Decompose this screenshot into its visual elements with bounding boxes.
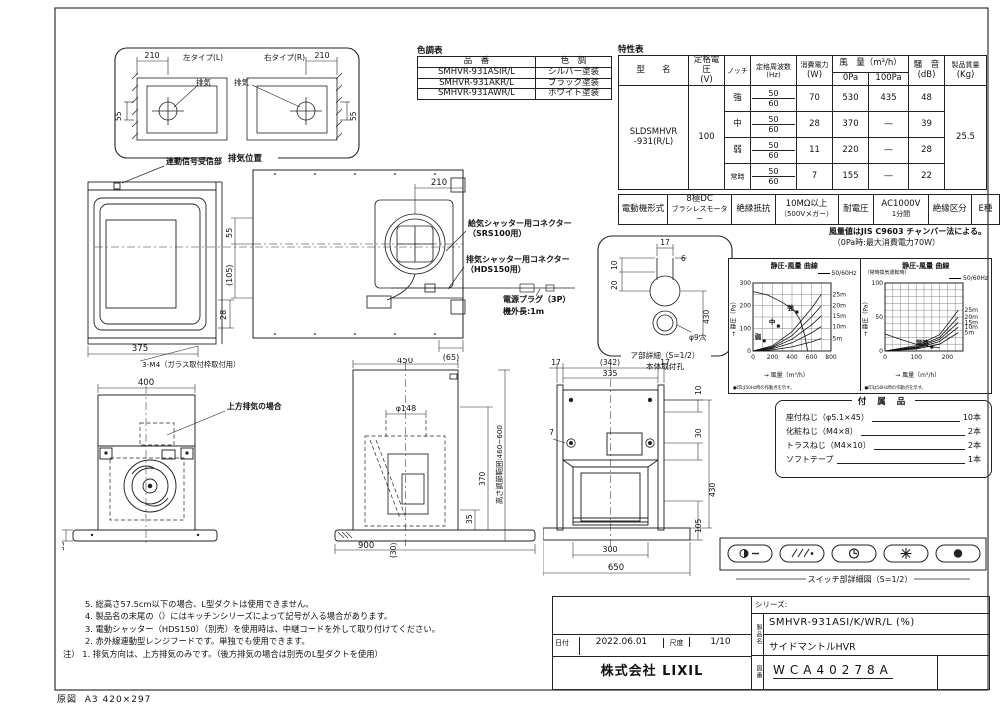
svg-text:0: 0 <box>883 354 887 361</box>
power: 28 <box>797 112 833 138</box>
mass-value: 25.5 <box>945 86 987 190</box>
withstand-v-label: 耐電圧 <box>838 195 874 225</box>
dim-650: 650 <box>608 563 624 573</box>
svg-text:200: 200 <box>767 354 779 361</box>
svg-text:10m: 10m <box>833 324 847 331</box>
svg-text:800: 800 <box>825 354 837 361</box>
chart-xlabel: → 風量（m³/h） <box>861 370 976 379</box>
note-line: 4. 製品名の末尾の（）にはキッチンシリーズによって記号が入る場合があります。 <box>63 610 513 622</box>
model-name: SLDSMHVR-931(R/L) <box>619 86 689 190</box>
color-col-color: 色 調 <box>536 57 612 68</box>
svg-text:400: 400 <box>786 354 798 361</box>
dim-6: 6 <box>681 254 686 263</box>
notch: 強 <box>725 86 751 112</box>
hole-label: φ9穴 <box>689 332 707 342</box>
svg-text:5m: 5m <box>833 336 843 343</box>
svg-text:50: 50 <box>875 314 883 321</box>
company-name: 株式会社 LIXIL <box>553 660 751 679</box>
airflow-0pa: 220 <box>833 138 869 164</box>
dim-17-right: 17 <box>660 358 670 367</box>
noise: 22 <box>909 164 945 190</box>
dim-10: 10 <box>610 260 619 270</box>
svg-text:200: 200 <box>740 303 752 310</box>
svg-text:中: 中 <box>769 317 776 326</box>
exhaust-label-left: 排気 <box>196 77 211 87</box>
svg-text:強: 強 <box>787 303 794 312</box>
noise: 48 <box>909 86 945 112</box>
dim-375: 375 <box>132 344 148 354</box>
dim-17-left: 17 <box>551 358 561 367</box>
airflow-0pa: 370 <box>833 112 869 138</box>
h-airflow-100pa: 100Pa <box>869 73 909 86</box>
freq: 5060 <box>751 164 797 190</box>
color-col-part: 品 番 <box>418 57 536 68</box>
dim-55: 55 <box>225 228 234 238</box>
note-line: 3. 電動シャッター（HDS150）（別売）を使用時は、中継コードを外して取り付… <box>63 623 513 635</box>
dim-30: (30) <box>389 543 398 558</box>
notch: 常時 <box>725 164 751 190</box>
exhaust-position-diagram: 210 210 左タイプ(L) 右タイプ(R) 排気 排気 55 55 排気位置 <box>112 45 362 167</box>
insulation-res-value: 10MΩ以上（500Vメガー） <box>775 195 838 225</box>
power-plug-label: 電源プラグ（3P） <box>503 295 570 305</box>
switch-panel-detail: スイッチ部詳細図（S=1/2） <box>718 532 990 588</box>
scale-value: 1/10 <box>689 637 751 647</box>
freq: 5060 <box>751 86 797 112</box>
dim-335: 335 <box>603 369 618 378</box>
dim-430: 430 <box>702 309 711 324</box>
svg-text:25m: 25m <box>833 291 847 298</box>
chart-legend: 50/60Hz <box>818 270 857 277</box>
dim-210-left: 210 <box>144 51 159 60</box>
accessory-item: ソフトテープ1本 <box>786 453 981 467</box>
dim-300: 300 <box>602 545 617 554</box>
chart-static-pressure: 静圧-風量 曲線 50/60Hz 02004006008000100200300… <box>729 259 860 391</box>
switch-panel-caption: スイッチ部詳細図（S=1/2） <box>808 574 913 584</box>
freq: 5060 <box>751 112 797 138</box>
insulation-class-value: E種 <box>971 195 999 225</box>
product-code: SMHVR-931ASI/K/WR/L (%) <box>769 617 987 628</box>
fan-speed-button <box>780 545 824 562</box>
date-value: 2022.06.01 <box>579 637 663 655</box>
note-line: 5. 総高さ57.5cm以下の場合、L型ダクトは使用できません。 <box>63 598 513 610</box>
svg-text:25m: 25m <box>964 307 978 314</box>
svg-text:0: 0 <box>747 348 751 355</box>
exhaust-label-right: 排気 <box>234 77 249 87</box>
accessory-item: 化粧ねじ（M4×8）2本 <box>786 425 981 439</box>
dim-30: 30 <box>694 428 703 438</box>
chart-xlabel: → 風量（m³/h） <box>729 370 844 379</box>
date-label: 日付 <box>555 638 579 648</box>
lamp-icon <box>954 549 962 557</box>
motor-spec-table: 電動機形式 8極DCブラシレスモーター 絶縁抵抗 10MΩ以上（500Vメガー）… <box>618 194 1000 225</box>
note-line: 2. 赤外線連動型レンジフードです。単独でも使用できます。 <box>63 635 513 647</box>
part-number: SMHVR-931ASIR/L <box>418 67 536 78</box>
airflow-100pa: ― <box>869 112 909 138</box>
product-name: サイドマントルHVR <box>769 639 987 653</box>
airflow-100pa: ― <box>869 138 909 164</box>
svg-text:0: 0 <box>751 354 755 361</box>
airflow-100pa: ― <box>869 164 909 190</box>
motor-type-label: 電動機形式 <box>619 195 668 225</box>
h-model: 型 名 <box>619 56 689 86</box>
dim-450: 450 <box>397 358 413 366</box>
dim-20: 20 <box>610 280 619 290</box>
svg-text:20m: 20m <box>964 314 978 321</box>
supply-connector-label: 給気シャッター用コネクター（SRS100用） <box>468 219 572 238</box>
withstand-v-value: AC1000V1分間 <box>874 195 928 225</box>
part-number: SMHVR-931AWR/L <box>418 89 536 100</box>
airflow-0pa: 155 <box>833 164 869 190</box>
h-power: 消費電力(W) <box>797 56 833 86</box>
color-table-title: 色調表 <box>417 44 443 56</box>
accessories-title: 付 属 品 <box>776 395 991 407</box>
airflow-0pa: 530 <box>833 86 869 112</box>
noise: 39 <box>909 112 945 138</box>
color-name: ホワイト塗装 <box>536 89 612 100</box>
h-mass: 製品質量(Kg) <box>945 56 987 86</box>
svg-text:600: 600 <box>806 354 818 361</box>
timer-icon <box>850 549 859 558</box>
notch: 弱 <box>725 138 751 164</box>
dim-10: 10 <box>694 385 703 395</box>
power-button <box>728 545 772 562</box>
svg-text:0: 0 <box>879 348 883 355</box>
dim-55-right: 55 <box>349 111 358 121</box>
scale-label: 尺度 <box>663 638 689 648</box>
drawing-sheet: 210 210 左タイプ(L) 右タイプ(R) 排気 排気 55 55 排気位置… <box>0 0 1000 707</box>
h-notch: ノッチ <box>725 56 751 86</box>
spec-table-title: 特性表 <box>618 43 644 55</box>
power-icon <box>740 550 759 558</box>
part-number: SMHVR-931AKR/L <box>418 78 536 89</box>
detail-a-drawing: 17 6 10 20 430 φ9穴 ア部詳細（S=1/2） 本体取付孔 <box>595 228 735 376</box>
dim-900: 900 <box>358 541 374 551</box>
height-range-label: 高さ調節範囲:460~600 <box>495 425 504 504</box>
color-name: シルバー塗装 <box>536 67 612 78</box>
power: 70 <box>797 86 833 112</box>
accessory-item: 座付ねじ（φ5.1×45）10本 <box>786 411 981 425</box>
cord-length-label: 機外長:1m <box>503 307 544 317</box>
svg-text:100: 100 <box>871 280 883 287</box>
power: 7 <box>797 164 833 190</box>
spec-table: 型 名 定格電圧(V) ノッチ 定格周波数(Hz) 消費電力(W) 風 量（m³… <box>618 55 987 190</box>
dim-400: 400 <box>138 378 154 388</box>
freq: 5060 <box>751 138 797 164</box>
insulation-res-label: 絶縁抵抗 <box>732 195 775 225</box>
top-exhaust-label: 上方排気の場合 <box>227 401 282 411</box>
h-airflow: 風 量（m³/h） <box>833 56 909 73</box>
h-airflow-0pa: 0Pa <box>833 73 869 86</box>
svg-text:100: 100 <box>740 325 752 332</box>
dim-370: 370 <box>478 471 487 486</box>
airflow-100pa: 435 <box>869 86 909 112</box>
svg-text:常時: 常時 <box>915 338 929 347</box>
note-line: 注） 1. 排気方向は、上方排気のみです。（後方排気の場合は別売のL型ダクトを使… <box>63 648 513 660</box>
chart-ylabel: → 静圧（Pa） <box>729 288 738 348</box>
dim-d148: φ148 <box>396 404 417 413</box>
right-type-label: 右タイプ(R) <box>264 52 305 62</box>
rear-view-drawing: 17 (342) 17 335 7 10 30 430 105 300 650 <box>543 355 718 590</box>
h-voltage: 定格電圧(V) <box>689 56 725 86</box>
chart-footnote: ●印は50Hz時の作動点を示す。 <box>865 385 926 391</box>
chart-subtitle: （常時換気運転時） <box>865 269 910 276</box>
chart-static-pressure-constant: 静圧-風量 曲線 （常時換気運転時） 50/60Hz 0100200050100… <box>860 259 992 391</box>
dim-210: 210 <box>431 178 447 188</box>
dim-55-left: 55 <box>114 111 123 121</box>
noise: 28 <box>909 138 945 164</box>
h-freq: 定格周波数(Hz) <box>751 56 797 86</box>
plan-view-drawing: 210 55 (105) (65) <box>225 160 475 365</box>
fan-speed-icon <box>792 549 813 557</box>
light-icon <box>901 548 912 559</box>
product-name-label: 製品名 <box>751 613 764 655</box>
legend-line-icon <box>818 273 830 274</box>
sheet-size-note: 原図 A3 420×297 <box>57 692 151 705</box>
front-view-center-drawing: 450 φ148 900 (30) 35 370 高さ調節範囲:460~600 <box>330 358 545 586</box>
dim-210-right: 210 <box>314 51 329 60</box>
dwg-no-label: 図番 <box>751 655 764 689</box>
power: 11 <box>797 138 833 164</box>
dim-430: 430 <box>708 482 717 497</box>
dim-35: 35 <box>465 514 474 524</box>
color-table: 品 番色 調 SMHVR-931ASIR/Lシルバー塗装 SMHVR-931AK… <box>417 56 612 100</box>
dim-105: 105 <box>694 518 703 533</box>
accessory-item: トラスねじ（M4×10）2本 <box>786 439 981 453</box>
side-view-bottom-drawing: 400 上方排気の場合 35 <box>62 378 317 578</box>
chart-ylabel: → 静圧（Pa） <box>860 288 869 348</box>
dim-35: 35 <box>62 541 66 551</box>
dim-17: 17 <box>660 238 670 247</box>
svg-text:弱: 弱 <box>755 332 762 341</box>
motor-type-value: 8極DCブラシレスモーター <box>667 195 731 225</box>
dim-7: 7 <box>549 428 554 437</box>
svg-text:300: 300 <box>740 280 752 287</box>
performance-charts: 静圧-風量 曲線 50/60Hz 02004006008000100200300… <box>728 258 992 394</box>
svg-text:200: 200 <box>941 354 953 361</box>
dim-342: (342) <box>600 358 620 367</box>
exhaust-connector-label: 排気シャッター用コネクター（HDS150用） <box>466 255 570 274</box>
notes-block: 5. 総高さ57.5cm以下の場合、L型ダクトは使用できません。 4. 製品名の… <box>63 598 513 660</box>
left-type-label: 左タイプ(L) <box>183 52 223 62</box>
chart-footnote: ●印は50Hz時の作動点を示す。 <box>733 385 794 391</box>
insulation-class-label: 絶縁区分 <box>928 195 971 225</box>
voltage-value: 100 <box>689 86 725 190</box>
dwg-no-value: WCA40278A <box>773 663 893 679</box>
notch: 中 <box>725 112 751 138</box>
svg-text:20m: 20m <box>833 303 847 310</box>
title-block: 日付 2022.06.01 尺度 1/10 株式会社 LIXIL シリーズ: 製… <box>552 596 990 690</box>
svg-text:100: 100 <box>910 354 922 361</box>
svg-text:15m: 15m <box>833 313 847 320</box>
h-noise: 騒 音(dB) <box>909 56 945 86</box>
series-label: シリーズ: <box>755 599 787 610</box>
accessories-box: 付 属 品 座付ねじ（φ5.1×45）10本 化粧ねじ（M4×8）2本 トラスね… <box>775 400 992 478</box>
dim-105: (105) <box>225 264 234 286</box>
